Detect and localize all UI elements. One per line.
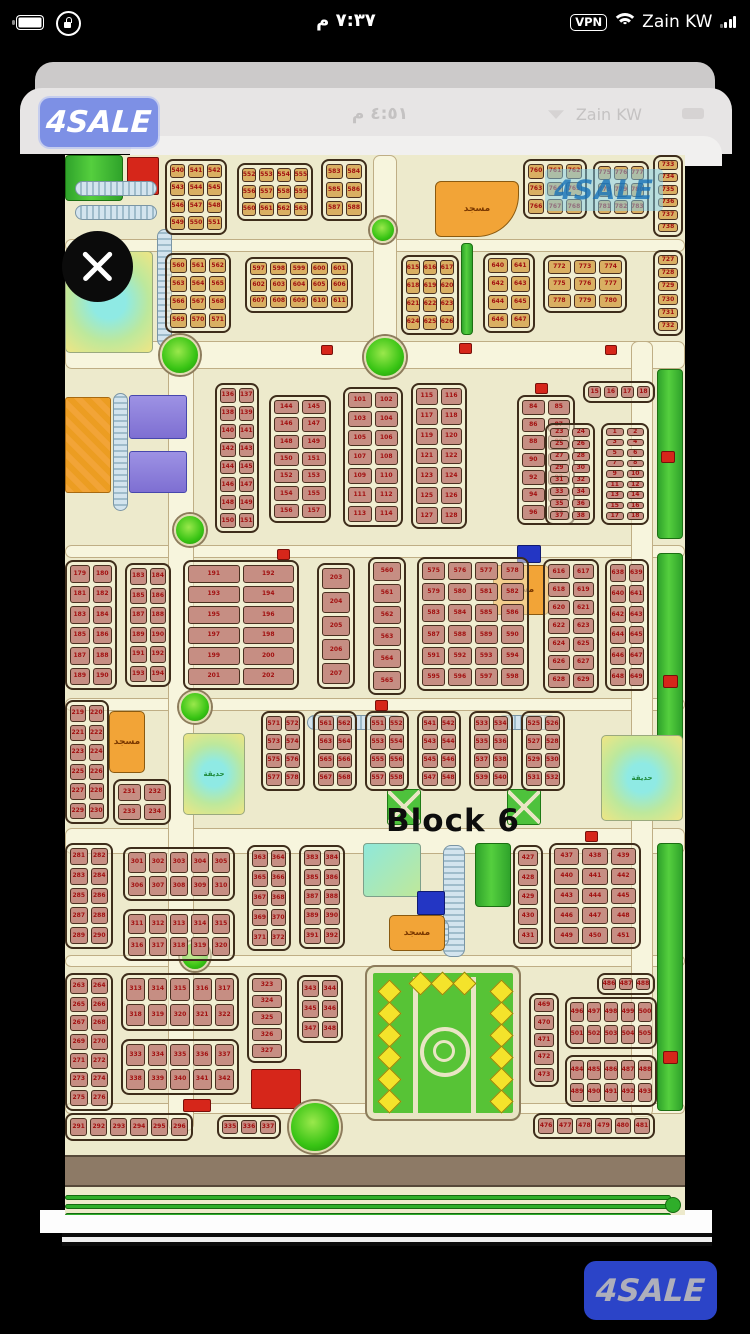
plot-number: 320 [170, 1004, 189, 1027]
plot-number: 562 [373, 606, 401, 625]
plot-number: 275 [70, 1090, 88, 1106]
plot-number: 184 [93, 606, 113, 624]
plot-number: 32 [572, 476, 591, 485]
plot-number: 105 [348, 430, 372, 446]
plot-number: 202 [243, 668, 295, 686]
plot-number: 537 [474, 753, 490, 768]
plot-cluster: 383384385386387388389390391392 [299, 845, 345, 949]
plot-number: 84 [522, 400, 545, 415]
plot-number: 383 [304, 850, 321, 866]
plot-number: 727 [658, 255, 678, 265]
plot-number: 8 [627, 460, 645, 468]
plot-number: 12 [627, 481, 645, 489]
map-image[interactable]: حديقةحديقةمسجدمسجدمسجدمسجد54054154254354… [65, 155, 685, 1215]
plot-number: 126 [441, 487, 463, 504]
plot-number: 292 [90, 1118, 107, 1136]
plot-number: 779 [574, 294, 597, 308]
plot-number: 26 [572, 440, 591, 449]
plot-number: 154 [274, 486, 299, 500]
plot-number: 151 [302, 452, 327, 466]
map-parkh [75, 181, 157, 196]
plot-number: 3 [606, 439, 624, 447]
plot-number: 316 [128, 937, 146, 957]
plot-number: 576 [285, 753, 301, 768]
plot-number: 448 [611, 907, 636, 924]
plot-number: 16 [627, 502, 645, 510]
plot-number: 88 [522, 435, 545, 450]
plot-number: 310 [212, 876, 230, 897]
plot-number: 389 [304, 908, 321, 924]
plot-cluster: 1011021031041051061071081091101111121131… [343, 387, 403, 527]
plot-number: 157 [302, 504, 327, 518]
plot-number: 296 [171, 1118, 188, 1136]
plot-number: 488 [638, 1060, 652, 1080]
plot-number: 568 [209, 295, 226, 310]
plot-number: 493 [638, 1083, 652, 1103]
plot-number: 565 [209, 276, 226, 291]
map-round [179, 691, 211, 723]
plot-number: 619 [423, 278, 437, 293]
plot-number: 552 [242, 168, 256, 182]
plot-number: 585 [475, 604, 498, 622]
plot-number: 593 [475, 647, 498, 665]
plot-number: 557 [370, 771, 386, 786]
plot-number: 314 [148, 978, 167, 1001]
plot-number: 639 [629, 564, 645, 582]
plot-number: 732 [658, 321, 678, 331]
plot-number: 546 [441, 753, 457, 768]
plot-number: 547 [422, 771, 438, 786]
plot-number: 315 [170, 978, 189, 1001]
plot-number: 561 [259, 202, 273, 216]
plot-cluster: 533534535536537538539540 [469, 711, 513, 791]
plot-number: 479 [595, 1118, 611, 1134]
plot-number: 194 [150, 666, 167, 683]
map-red [321, 345, 333, 355]
plot-number: 546 [170, 199, 185, 213]
plot-number: 183 [130, 568, 147, 585]
plot-number: 649 [629, 668, 645, 686]
plot-number: 206 [322, 639, 350, 660]
plot-number: 92 [522, 470, 545, 485]
plot-number: 30 [572, 464, 591, 473]
plot-number: 263 [70, 978, 88, 994]
plot-number: 118 [441, 408, 463, 425]
plot-number: 592 [448, 647, 471, 665]
plot-number: 385 [304, 869, 321, 885]
plot-number: 333 [126, 1044, 145, 1066]
plot-number: 604 [290, 278, 307, 291]
plot-number: 563 [373, 627, 401, 646]
plot-number: 274 [91, 1072, 109, 1088]
plot-number: 624 [406, 315, 420, 330]
plot-number: 569 [170, 313, 187, 328]
plot-number: 487 [619, 978, 633, 990]
plot-number: 34 [572, 487, 591, 496]
plot-cluster: 281282283284285286287288289290 [65, 843, 113, 949]
plot-number: 548 [207, 199, 222, 213]
plot-number: 626 [440, 315, 454, 330]
plot-number: 533 [474, 716, 490, 731]
plot-number: 104 [375, 411, 399, 427]
plot-number: 96 [522, 505, 545, 520]
plot-number: 103 [348, 411, 372, 427]
plot-cluster: 191192193194195196197198199200201202 [183, 560, 299, 690]
plot-cluster: 486487488 [597, 973, 655, 995]
plot-number: 335 [170, 1044, 189, 1066]
plot-number: 572 [285, 716, 301, 731]
plot-number: 623 [573, 618, 595, 633]
plot-number: 539 [474, 771, 490, 786]
plot-cluster: 219220221222223224225226227228229230 [65, 700, 109, 824]
plot-number: 566 [337, 753, 353, 768]
inner-wifi-icon [548, 108, 564, 119]
map-round [174, 514, 206, 546]
plot-number: 15 [606, 502, 624, 510]
plot-cluster: 1151161171181191201211221231241251261271… [411, 383, 467, 529]
plot-number: 629 [573, 673, 595, 688]
plot-number: 188 [93, 647, 113, 665]
plot-number: 313 [170, 914, 188, 934]
plot-number: 31 [550, 476, 569, 485]
plot-number: 555 [370, 753, 386, 768]
map-garden [365, 965, 521, 1121]
plot-number: 618 [406, 278, 420, 293]
plot-cluster: 203204205206207 [317, 563, 355, 689]
plot-number: 27 [550, 452, 569, 461]
plot-number: 603 [270, 278, 287, 291]
plot-number: 588 [346, 201, 363, 216]
plot-number: 595 [422, 668, 445, 686]
plot-number: 187 [70, 647, 90, 665]
plot-number: 225 [70, 764, 86, 781]
plot-number: 303 [170, 852, 188, 873]
plot-number: 191 [130, 646, 147, 663]
plot-number: 115 [416, 388, 438, 405]
plot-number: 343 [302, 980, 319, 997]
vpn-badge: VPN [570, 14, 607, 31]
plot-cluster: 525526527528529530531532 [521, 711, 565, 791]
plot-number: 638 [610, 564, 626, 582]
plot-number: 183 [70, 606, 90, 624]
plot-number: 207 [322, 663, 350, 684]
plot-number: 568 [337, 771, 353, 786]
plot-number: 599 [290, 262, 307, 275]
plot-number: 480 [615, 1118, 631, 1134]
plot-number: 289 [70, 927, 88, 944]
plot-number: 13 [606, 491, 624, 499]
plot-number: 392 [324, 928, 341, 944]
plot-cluster: 727728729730731732 [653, 250, 683, 336]
plot-number: 33 [550, 487, 569, 496]
plot-cluster: 313314315316317318319320321322 [121, 973, 239, 1031]
plot-number: 17 [621, 386, 634, 398]
plot-number: 137 [239, 388, 255, 403]
plot-number: 564 [190, 276, 207, 291]
plot-number: 190 [93, 668, 113, 686]
plot-number: 107 [348, 449, 372, 465]
plot-number: 340 [170, 1069, 189, 1091]
plot-number: 108 [375, 449, 399, 465]
plot-number: 294 [130, 1118, 147, 1136]
plot-number: 269 [70, 1034, 88, 1050]
plot-number: 285 [70, 888, 88, 905]
map-green [475, 843, 511, 907]
plot-number: 145 [302, 400, 327, 414]
plot-number: 149 [302, 435, 327, 449]
plot-number: 17 [606, 512, 624, 520]
plot-number: 596 [448, 668, 471, 686]
plot-number: 195 [188, 606, 240, 624]
plot-number: 583 [326, 164, 343, 179]
plot-number: 197 [188, 627, 240, 645]
plot-cluster: 179180181182183184185186187188189190 [65, 560, 117, 690]
plot-number: 578 [285, 771, 301, 786]
plot-number: 220 [89, 705, 105, 722]
plot-number: 644 [488, 295, 508, 310]
plot-number: 538 [493, 753, 509, 768]
plot-number: 473 [534, 1068, 554, 1082]
plot-number: 119 [416, 428, 438, 445]
plot-number: 148 [220, 495, 236, 510]
plot-number: 391 [304, 928, 321, 944]
plot-number: 337 [260, 1120, 276, 1134]
plot-number: 363 [252, 850, 268, 867]
plot-number: 319 [148, 1004, 167, 1027]
map-red [661, 451, 675, 463]
plot-number: 150 [220, 513, 236, 528]
plot-number: 302 [149, 852, 167, 873]
plot-number: 590 [501, 625, 524, 643]
plot-number: 138 [220, 406, 236, 421]
map-red [605, 345, 617, 355]
plot-number: 530 [545, 753, 561, 768]
plot-number: 487 [621, 1060, 635, 1080]
plot-number: 322 [215, 1004, 234, 1027]
map-red [585, 831, 598, 842]
plot-number: 580 [448, 583, 471, 601]
plot-number: 114 [375, 506, 399, 522]
plot-number: 450 [582, 927, 607, 944]
plot-number: 584 [346, 164, 363, 179]
plot-number: 543 [422, 734, 438, 749]
map-street [373, 155, 397, 345]
plot-number: 122 [441, 448, 463, 465]
plot-number: 602 [250, 278, 267, 291]
plot-number: 11 [606, 481, 624, 489]
plot-number: 544 [441, 734, 457, 749]
plot-number: 38 [572, 511, 591, 520]
plot-number: 529 [526, 753, 542, 768]
plot-number: 111 [348, 487, 372, 503]
plot-number: 627 [573, 655, 595, 670]
plot-number: 368 [271, 890, 287, 907]
map-parkv [113, 393, 128, 511]
plot-number: 544 [188, 181, 203, 195]
plot-number: 625 [573, 637, 595, 652]
map-watermark: 4SALE [545, 169, 663, 211]
plot-number: 486 [604, 1060, 618, 1080]
map-green [657, 843, 683, 1111]
plot-cluster: 5755765775785795805815825835845855865875… [417, 557, 529, 691]
plot-number: 622 [548, 618, 570, 633]
plot-number: 185 [70, 627, 90, 645]
plot-number: 470 [534, 1015, 554, 1029]
plot-number: 563 [294, 202, 308, 216]
plot-number: 561 [318, 716, 334, 731]
plot-number: 227 [70, 783, 86, 800]
plot-number: 229 [70, 803, 86, 820]
plot-number: 128 [441, 507, 463, 524]
plot-number: 304 [191, 852, 209, 873]
plot-number: 502 [587, 1025, 601, 1045]
plot-number: 444 [582, 888, 607, 905]
map-round [364, 336, 406, 378]
plot-number: 293 [110, 1118, 127, 1136]
plot-number: 142 [220, 442, 236, 457]
plot-cluster: 615616617618619620621622623624625626 [401, 255, 459, 335]
plot-number: 730 [658, 294, 678, 304]
plot-cluster: 15161718 [583, 381, 655, 403]
plot-number: 290 [91, 927, 109, 944]
plot-number: 772 [548, 260, 571, 274]
plot-number: 185 [130, 588, 147, 605]
plot-number: 535 [474, 734, 490, 749]
plot-number: 532 [545, 771, 561, 786]
plot-number: 141 [239, 424, 255, 439]
plot-number: 607 [250, 295, 267, 308]
plot-number: 542 [441, 716, 457, 731]
plot-number: 125 [416, 487, 438, 504]
close-button[interactable] [62, 231, 133, 302]
plot-number: 575 [422, 562, 445, 580]
plot-number: 774 [599, 260, 622, 274]
plot-number: 775 [548, 277, 571, 291]
plot-cluster: 6166176186196206216226236246256266276286… [543, 559, 599, 693]
plot-number: 605 [311, 278, 328, 291]
plot-number: 609 [290, 295, 307, 308]
map-pond: حديقة [601, 735, 683, 821]
inner-battery-icon [682, 108, 704, 119]
plot-number: 447 [582, 907, 607, 924]
plot-number: 23 [550, 428, 569, 437]
plot-number: 737 [658, 210, 678, 220]
plot-number: 566 [170, 295, 187, 310]
plot-number: 200 [243, 647, 295, 665]
plot-number: 199 [188, 647, 240, 665]
plot-number: 565 [373, 671, 401, 690]
plot-number: 286 [91, 888, 109, 905]
plot-cluster: 323324325326327 [247, 973, 287, 1063]
plot-number: 577 [475, 562, 498, 580]
plot-cluster: 571572573574575576577578 [261, 711, 305, 791]
plot-number: 320 [212, 937, 230, 957]
plot-number: 562 [337, 716, 353, 731]
plot-number: 156 [274, 504, 299, 518]
plot-number: 85 [548, 400, 571, 415]
map-red [183, 1099, 211, 1112]
plot-number: 733 [658, 160, 678, 170]
plot-number: 323 [252, 978, 282, 992]
plot-cluster: 333334335336337338339340341342 [121, 1039, 239, 1095]
plot-number: 488 [636, 978, 650, 990]
plot-number: 232 [144, 784, 167, 801]
plot-number: 641 [629, 585, 645, 603]
plot-number: 647 [629, 647, 645, 665]
plot-number: 228 [89, 783, 105, 800]
plot-number: 557 [259, 185, 273, 199]
plot-number: 534 [493, 716, 509, 731]
plot-number: 597 [475, 668, 498, 686]
plot-number: 545 [207, 181, 222, 195]
plot-number: 642 [610, 606, 626, 624]
plot-number: 469 [534, 998, 554, 1012]
plot-number: 327 [252, 1044, 282, 1058]
map-orangeblock [65, 397, 111, 493]
plot-number: 542 [207, 164, 222, 178]
plot-number: 587 [326, 201, 343, 216]
plot-number: 622 [423, 297, 437, 312]
plot-number: 548 [441, 771, 457, 786]
plot-number: 581 [475, 583, 498, 601]
plot-number: 643 [511, 276, 531, 291]
plot-number: 499 [621, 1002, 635, 1022]
plot-number: 316 [193, 978, 212, 1001]
plot-number: 37 [550, 511, 569, 520]
plot-number: 575 [266, 753, 282, 768]
plot-number: 526 [545, 716, 561, 731]
plot-number: 582 [501, 583, 524, 601]
plot-number: 226 [89, 764, 105, 781]
plot-number: 281 [70, 848, 88, 865]
plot-number: 620 [440, 278, 454, 293]
plot-number: 578 [501, 562, 524, 580]
plot-cluster: 561562563564565566567568 [313, 711, 357, 791]
plot-number: 348 [322, 1021, 339, 1038]
plot-number: 536 [493, 734, 509, 749]
plot-number: 272 [91, 1053, 109, 1069]
plot-number: 187 [130, 607, 147, 624]
plot-number: 623 [440, 297, 454, 312]
plot-number: 312 [149, 914, 167, 934]
plot-number: 179 [70, 565, 90, 583]
plot-number: 144 [220, 460, 236, 475]
status-bar: ٧:٣٧ م VPN Zain KW [0, 0, 750, 44]
plot-number: 29 [550, 464, 569, 473]
plot-number: 124 [441, 467, 463, 484]
plot-number: 491 [604, 1083, 618, 1103]
plot-number: 777 [599, 277, 622, 291]
plot-number: 541 [422, 716, 438, 731]
plot-cluster: 560561562563564565 [368, 557, 406, 695]
plot-cluster: 231232233234 [113, 779, 171, 825]
plot-number: 9 [606, 470, 624, 478]
plot-cluster: 23242526272829303132333435363738 [545, 423, 595, 525]
plot-cluster: 4374384394404414424434444454464474484494… [549, 843, 641, 949]
plot-number: 36 [572, 499, 591, 508]
plot-number: 338 [126, 1069, 145, 1091]
plot-number: 476 [538, 1118, 554, 1134]
footer-logo-badge: 4SALE [584, 1261, 717, 1320]
plot-number: 4 [627, 439, 645, 447]
plot-number: 531 [526, 771, 542, 786]
plot-number: 145 [239, 460, 255, 475]
plot-number: 94 [522, 488, 545, 503]
map-purple [129, 451, 187, 493]
plot-number: 192 [150, 646, 167, 663]
plot-number: 429 [518, 889, 538, 905]
plot-number: 477 [557, 1118, 573, 1134]
